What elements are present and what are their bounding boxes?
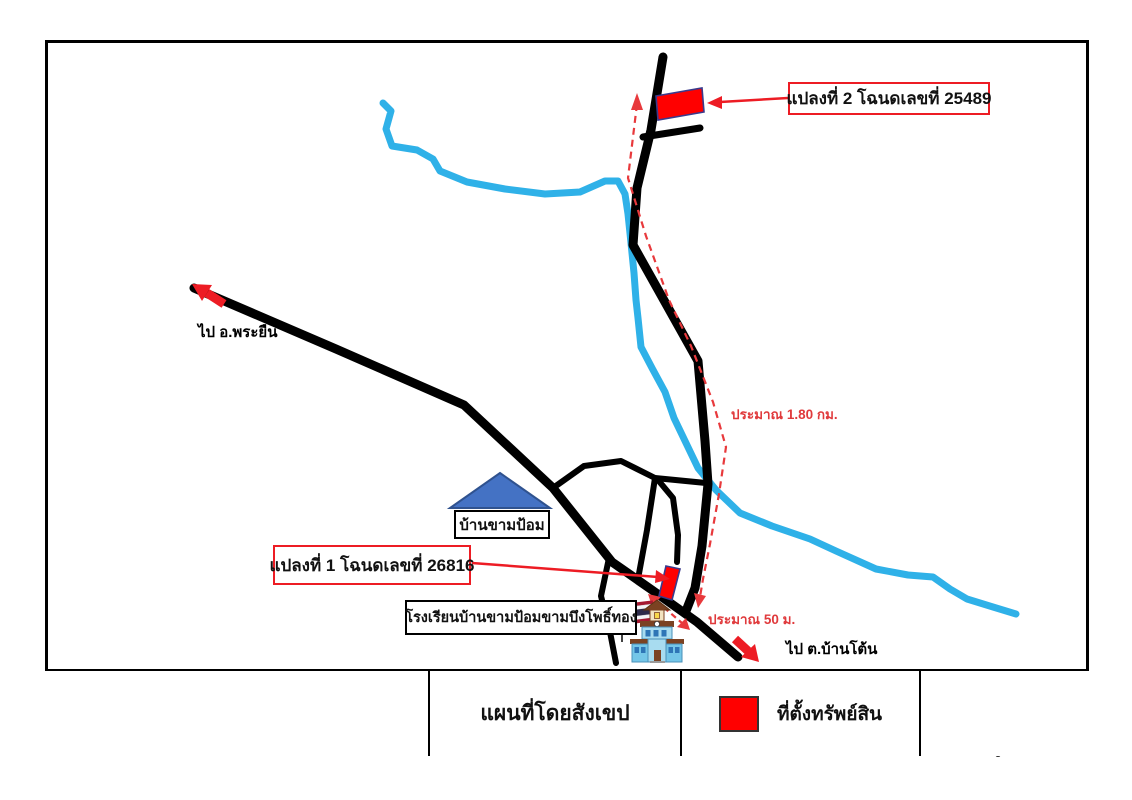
village-street-loop: [553, 461, 706, 488]
compass-cell: [919, 671, 1089, 756]
distance-short-label: ประมาณ 50 ม.: [708, 608, 795, 630]
distance-long-label: ประมาณ 1.80 กม.: [731, 403, 838, 425]
village-street-inner: [658, 480, 678, 562]
map-title: แผนที่โดยสังเขป: [480, 697, 629, 730]
direction-phrayuen-label: ไป อ.พระยืน: [198, 320, 277, 344]
village-roof-icon: [450, 473, 550, 508]
parcel1-callout-box: แปลงที่ 1 โฉนดเลขที่ 26816: [273, 545, 471, 585]
village-street-middle: [638, 478, 655, 579]
legend-empty-cell: [45, 671, 428, 756]
parcel2-callout-box: แปลงที่ 2 โฉนดเลขที่ 25489: [788, 82, 990, 115]
route-arrowhead-up-icon: [631, 93, 643, 110]
property-marker-swatch: [719, 696, 759, 732]
property-marker-label: ที่ตั้งทรัพย์สิน: [777, 699, 882, 729]
parcel2-callout-arrow: [720, 98, 788, 102]
route-arrowhead-down-icon: [694, 593, 706, 608]
map-title-cell: แผนที่โดยสังเขป: [428, 671, 680, 756]
school-label-box: โรงเรียนบ้านขามป้อมขามบึงโพธิ์ทอง: [405, 600, 637, 635]
parcel2-arrowhead-icon: [707, 96, 722, 109]
legend-band: แผนที่โดยสังเขป ที่ตั้งทรัพย์สิน: [45, 669, 1089, 756]
direction-banton-label: ไป ต.บ้านโต้น: [786, 637, 877, 661]
sketch-map-page: N E S W NNE ENE ESE SSE SSW WSW WNW NNW …: [0, 0, 1132, 800]
village-label-box: บ้านขามป้อม: [454, 510, 550, 539]
parcel-1: [659, 566, 680, 600]
legend-marker-cell: ที่ตั้งทรัพย์สิน: [680, 671, 919, 756]
parcel-2: [656, 88, 704, 120]
